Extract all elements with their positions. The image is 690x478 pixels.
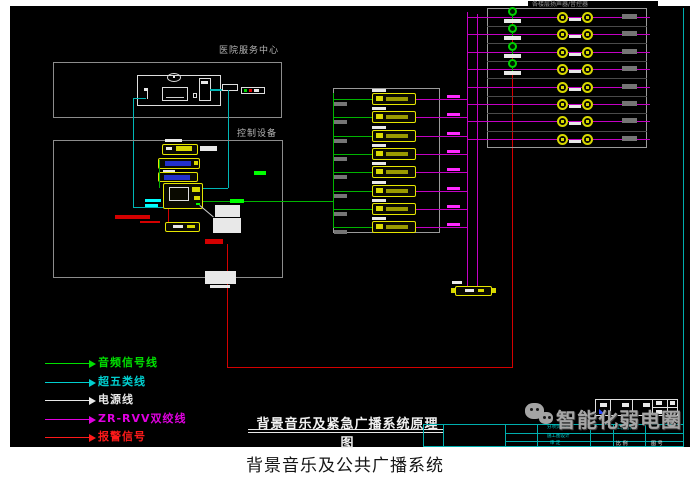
monitor-speaker-box [213, 218, 241, 233]
speaker-dot [586, 120, 589, 123]
cad-canvas: 医院服务中心 控制设备 [10, 6, 690, 447]
legend-label: 电源线 [98, 394, 134, 405]
paging-led-green [244, 89, 247, 92]
volume-label-chip [504, 36, 521, 40]
speaker-dot [586, 16, 589, 19]
speaker-bracket [569, 140, 581, 143]
amplifier-face-bar [386, 97, 408, 101]
legend-arrow-icon [89, 434, 96, 442]
speaker-bracket [569, 53, 581, 56]
wire-label-chip [447, 168, 460, 171]
zone-ref-chip [334, 139, 347, 143]
speaker-dot [561, 68, 564, 71]
amplifier-label-chip [372, 181, 386, 184]
audio-feed-wire [333, 191, 372, 192]
titleblock-line [443, 424, 444, 447]
legend-label: 报警信号 [98, 431, 146, 442]
legend-arrow-icon [89, 379, 96, 387]
titleblock-line [505, 433, 683, 434]
legend-arrow-icon [89, 416, 96, 424]
speaker-dot [586, 103, 589, 106]
ups-base [210, 285, 230, 288]
paging-key [254, 89, 259, 92]
controller-keys [194, 196, 200, 200]
speaker-out-wire [416, 136, 467, 137]
zone-ref-chip [334, 157, 347, 161]
audio-bus-rack [159, 160, 160, 188]
volume-label-chip [504, 19, 521, 23]
speaker-dot [561, 138, 564, 141]
watermark-text: 智能化弱电圈 [556, 404, 682, 433]
legend-label: 音频信号线 [98, 357, 158, 368]
alarm-wire-stub [140, 221, 160, 223]
control-equipment-label: 控制设备 [237, 130, 277, 139]
amplifier-face-bar [386, 134, 408, 138]
wire-label-chip [447, 223, 460, 226]
junction-label-chip [452, 281, 462, 284]
audio-feed-wire [333, 172, 372, 173]
legend-line [45, 382, 89, 383]
amplifier-face-bar [386, 225, 408, 229]
alarm-wire-tag [205, 239, 223, 244]
speaker-out-wire [416, 209, 467, 210]
wire-label-chip [447, 113, 460, 116]
monitor-icon [162, 87, 188, 101]
audio-feed-wire [333, 227, 372, 228]
terminal-lug [492, 288, 496, 293]
wire-label-chip [447, 95, 460, 98]
controller-screen [169, 187, 189, 201]
zone-ref-chip [622, 49, 637, 54]
speaker-dot [561, 33, 564, 36]
speaker-dot [586, 51, 589, 54]
monitor-speaker-box [215, 205, 240, 217]
service-center-label: 医院服务中心 [219, 47, 279, 56]
legend-line [45, 419, 89, 420]
ups-box [205, 271, 236, 284]
legend-label: ZR-RVV双绞线 [98, 413, 187, 424]
preamp-display [164, 175, 190, 180]
watermark: 智能化弱电圈 [525, 401, 690, 433]
amplifier-label-chip [372, 144, 386, 147]
speaker-bracket [569, 122, 581, 125]
sequencer-slot [173, 225, 183, 228]
small-device [193, 93, 197, 98]
zone-ref-chip [334, 120, 347, 124]
wire-label-chip [447, 150, 460, 153]
audio-feed-wire [333, 117, 372, 118]
zone-ref-chip [334, 102, 347, 106]
titleblock-field: 图 号 [651, 442, 663, 447]
rack-side-chip [200, 146, 217, 151]
audio-feed-wire [333, 99, 372, 100]
audio-out-wire [203, 201, 333, 202]
sequencer-keys [187, 225, 195, 228]
microphone-stem [147, 91, 148, 99]
speaker-bracket [569, 70, 581, 73]
title-underline [248, 429, 444, 430]
clock-hand [173, 76, 175, 78]
speaker-dot [586, 138, 589, 141]
amplifier-label-chip [372, 199, 386, 202]
amplifier-label-chip [372, 217, 386, 220]
zone-ref-chip [334, 212, 347, 216]
zone-ref-chip [622, 118, 637, 123]
zone-ref-chip [622, 66, 637, 71]
amplifier-face-bar [386, 152, 408, 156]
paging-led-red [249, 89, 252, 92]
speaker-dot [561, 103, 564, 106]
alarm-wire-tag [115, 215, 150, 219]
amplifier-label-chip [372, 89, 386, 92]
zr-rvv-bus [477, 14, 478, 286]
tuner-display [165, 161, 191, 166]
cd-player-slot [166, 147, 172, 150]
speaker-dot [561, 120, 564, 123]
zone-ref-chip [334, 230, 347, 234]
audio-wire-tag [254, 171, 266, 175]
amplifier-face [376, 96, 383, 101]
amplifier-face [376, 224, 383, 229]
image-caption: 背景音乐及公共广播系统 [0, 451, 690, 476]
legend-line [45, 437, 89, 438]
amplifier-label-chip [372, 162, 386, 165]
cd-player-face [176, 146, 192, 151]
legend-arrow-icon [89, 360, 96, 368]
speaker-out-wire [416, 154, 467, 155]
speaker-dot [586, 33, 589, 36]
legend-line [45, 400, 89, 401]
speaker-bracket [569, 18, 581, 21]
row-divider [487, 78, 647, 79]
legend-arrow-icon [89, 397, 96, 405]
title-underline [248, 432, 444, 433]
zone-ref-chip [622, 136, 637, 141]
amplifier-face [376, 169, 383, 174]
cat5e-drop-left-stub [133, 98, 146, 99]
terminal-lug [451, 288, 455, 293]
speaker-out-wire [416, 227, 467, 228]
amplifier-face [376, 206, 383, 211]
row-divider [487, 96, 647, 97]
zone-ref-chip [622, 84, 637, 89]
speaker-out-wire [416, 172, 467, 173]
zone-ref-chip [334, 175, 347, 179]
terminal-slot [465, 289, 474, 292]
drawing-border-right [683, 8, 684, 447]
speaker-dot [561, 51, 564, 54]
titleblock-field: 施工图设计 [547, 435, 570, 440]
alarm-wire-rack-drop [168, 209, 169, 222]
alarm-wire-bottom [227, 367, 513, 368]
wire-label-chip [447, 132, 460, 135]
volume-label-chip [504, 54, 521, 58]
keyboard-line [166, 97, 184, 98]
amplifier-face-bar [386, 207, 408, 211]
audio-feed-wire [333, 209, 372, 210]
alarm-wire-down [227, 244, 228, 367]
amplifier-label-chip [372, 107, 386, 110]
speaker-out-wire [416, 117, 467, 118]
audio-wire-tag [230, 199, 244, 203]
volume-label-chip [504, 71, 521, 75]
titleblock-line [505, 424, 506, 447]
zone-ref-chip [622, 14, 637, 19]
row-divider [487, 131, 647, 132]
audio-feed-wire [333, 154, 372, 155]
zone-ref-chip [334, 194, 347, 198]
wire-label-chip [447, 205, 460, 208]
pc-tower-slot [201, 81, 208, 84]
speaker-dot [586, 68, 589, 71]
wall-outlet-box [222, 84, 238, 91]
terminal-keys [478, 289, 484, 292]
amplifier-face [376, 133, 383, 138]
speaker-dot [561, 16, 564, 19]
zone-ref-chip [622, 31, 637, 36]
audio-feed-wire [333, 136, 372, 137]
speaker-bracket [569, 105, 581, 108]
speaker-out-wire [416, 99, 467, 100]
legend-label: 超五类线 [98, 376, 146, 387]
speaker-bracket [569, 35, 581, 38]
amplifier-face [376, 151, 383, 156]
tuner-knob [194, 161, 198, 165]
rack-label-chip [165, 139, 182, 142]
speaker-out-wire [416, 191, 467, 192]
speaker-dot [586, 86, 589, 89]
amplifier-face-bar [386, 115, 408, 119]
amplifier-face-bar [386, 170, 408, 174]
zr-rvv-bus [467, 12, 468, 286]
legend-line [45, 363, 89, 364]
titleblock-field: 比 例 [616, 442, 628, 447]
titleblock-field: 审 定 [550, 442, 560, 447]
amplifier-label-chip [372, 126, 386, 129]
amplifier-face-bar [386, 189, 408, 193]
wechat-icon [525, 403, 555, 429]
wire-label-chip [447, 187, 460, 190]
speaker-dot [561, 86, 564, 89]
speaker-bracket [569, 88, 581, 91]
amplifier-face [376, 188, 383, 193]
row-divider [487, 113, 647, 114]
amplifier-face [376, 114, 383, 119]
zone-ref-chip [622, 101, 637, 106]
controller-keys [192, 187, 200, 192]
screenshot-root: 医院服务中心 控制设备 [0, 0, 690, 478]
